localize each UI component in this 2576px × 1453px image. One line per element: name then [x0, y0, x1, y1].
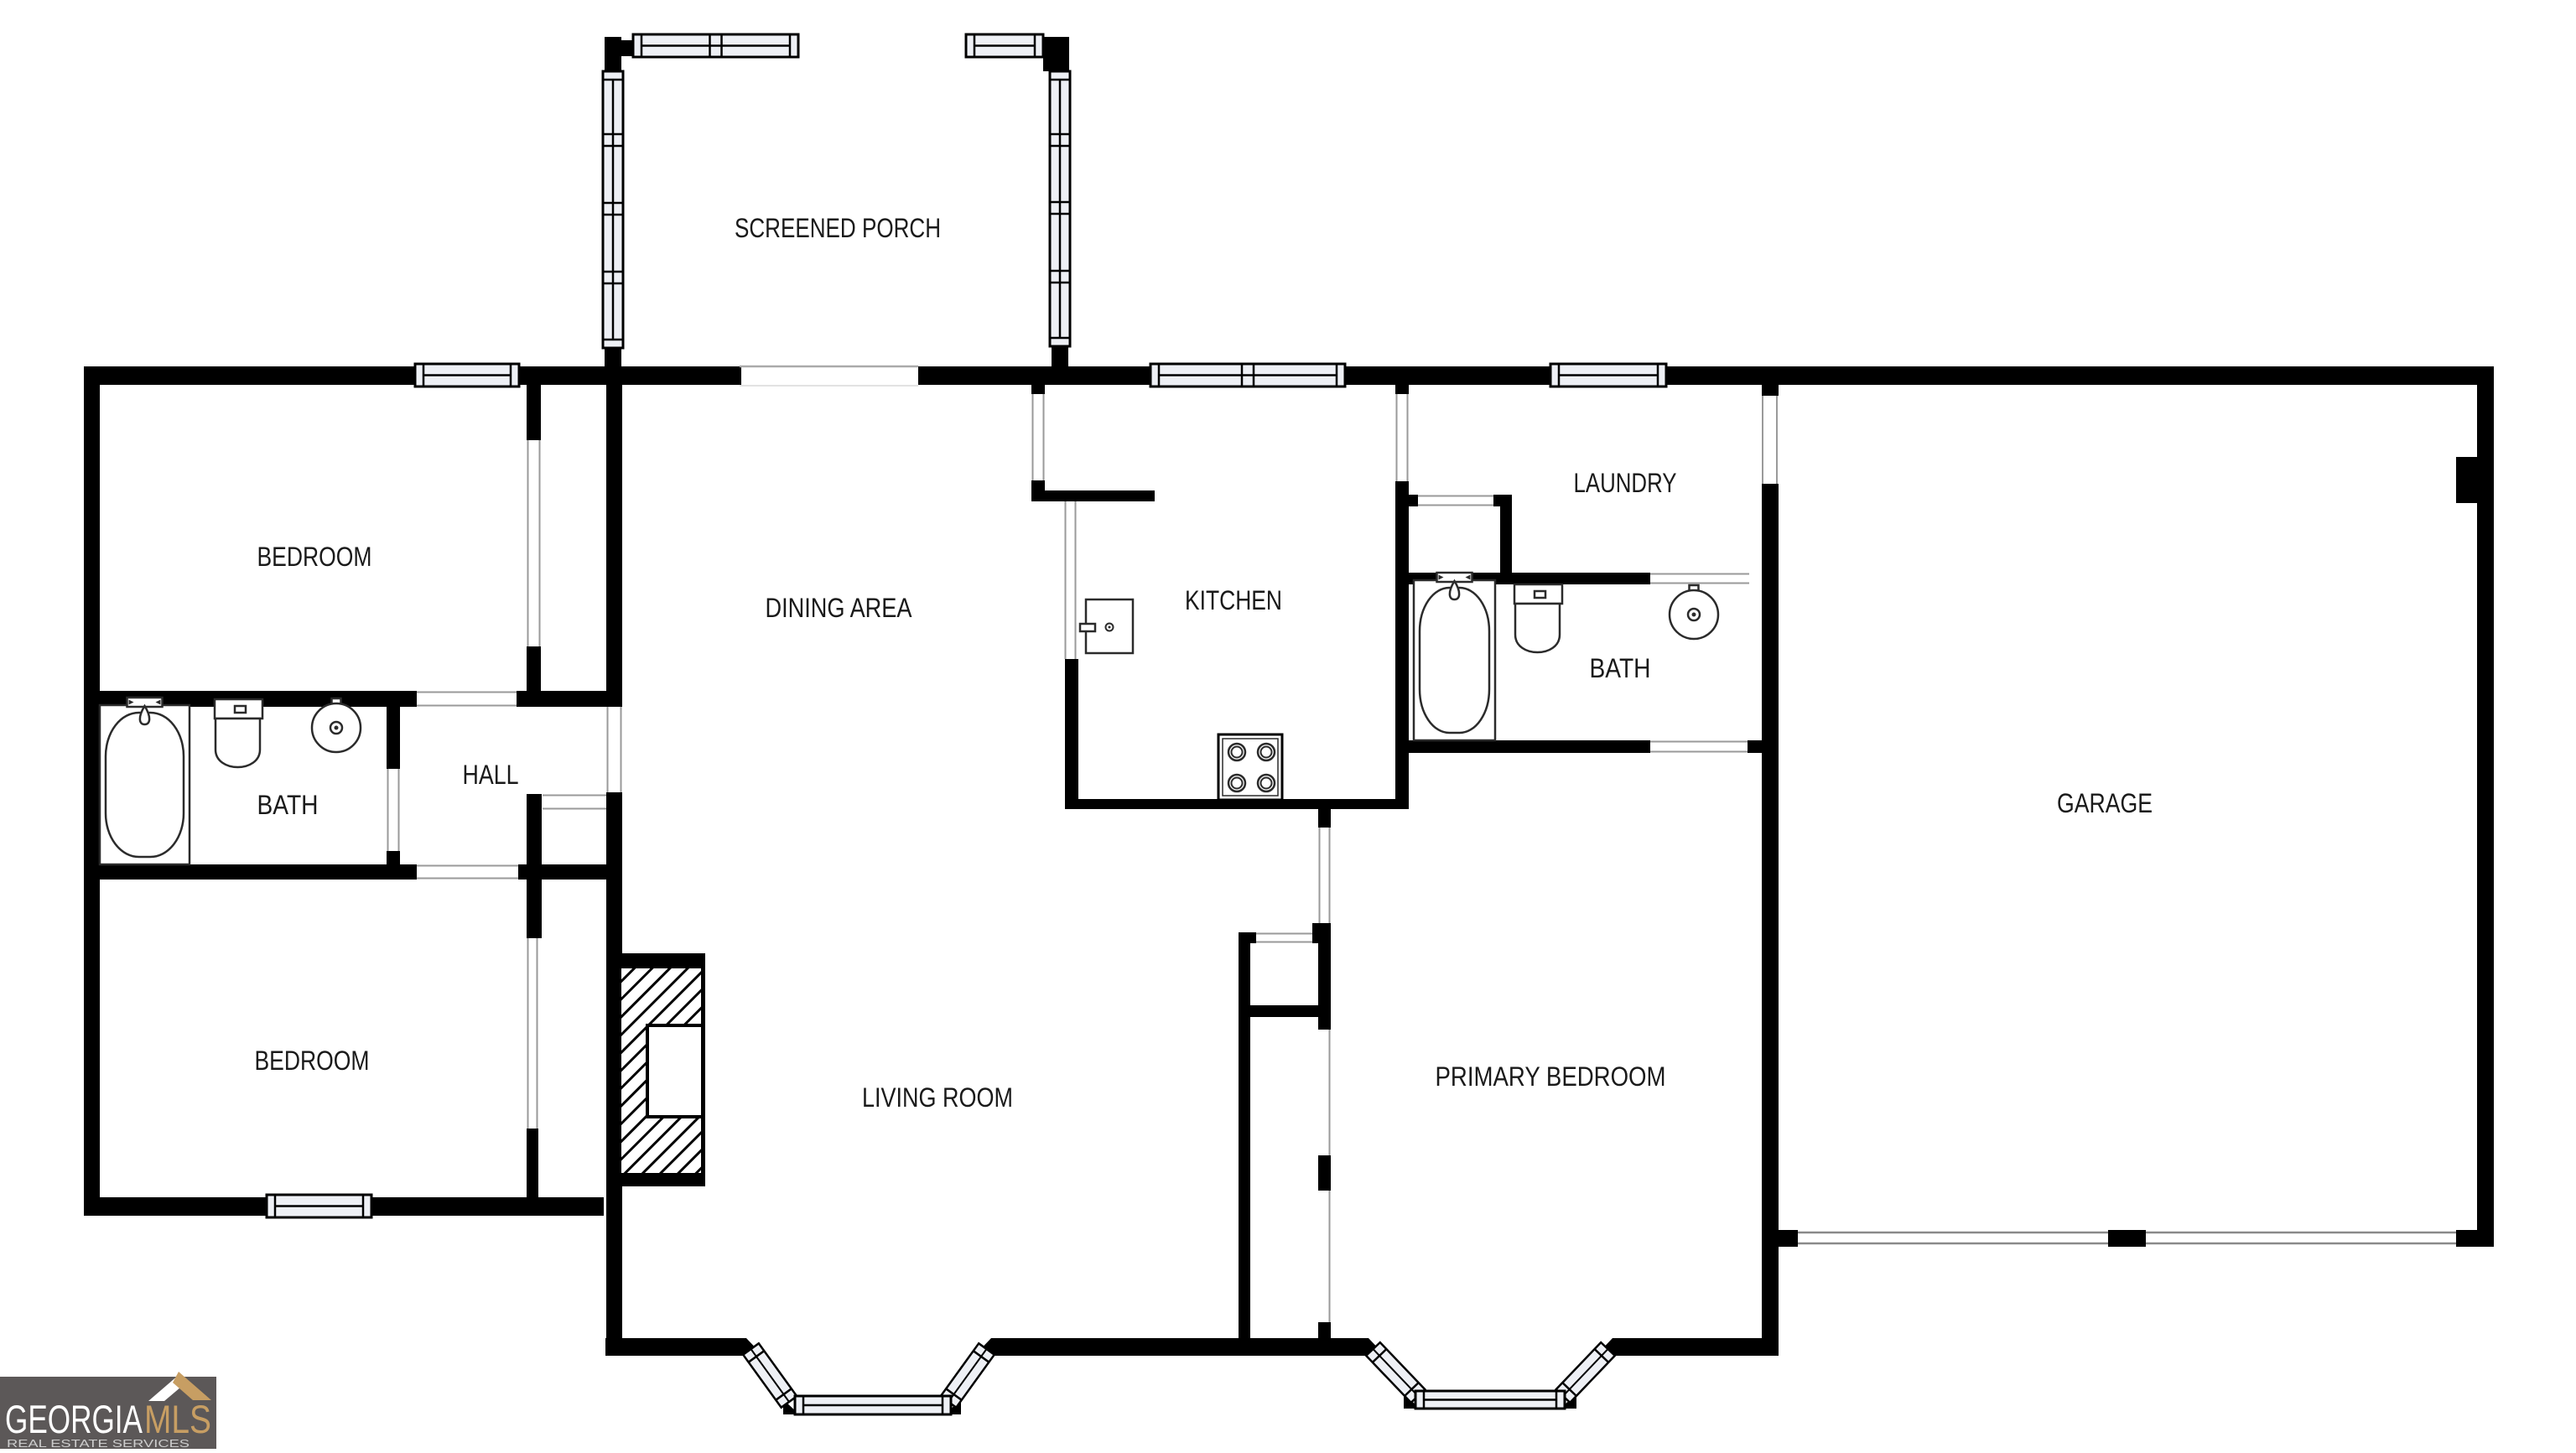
svg-text:DINING AREA: DINING AREA [766, 593, 913, 623]
svg-text:BATH: BATH [257, 790, 319, 820]
svg-text:KITCHEN: KITCHEN [1185, 585, 1282, 615]
svg-text:BEDROOM: BEDROOM [257, 542, 372, 572]
svg-text:BEDROOM: BEDROOM [255, 1046, 370, 1076]
svg-text:GARAGE: GARAGE [2057, 788, 2153, 818]
svg-text:SCREENED PORCH: SCREENED PORCH [735, 213, 941, 243]
svg-text:HALL: HALL [463, 760, 519, 790]
svg-text:GEORGIA: GEORGIA [5, 1397, 143, 1441]
svg-text:MLS: MLS [144, 1397, 211, 1441]
svg-text:BATH: BATH [1590, 653, 1651, 683]
svg-text:LIVING ROOM: LIVING ROOM [862, 1082, 1013, 1113]
svg-text:REAL ESTATE SERVICES: REAL ESTATE SERVICES [7, 1437, 190, 1449]
svg-text:LAUNDRY: LAUNDRY [1574, 468, 1677, 498]
svg-text:PRIMARY BEDROOM: PRIMARY BEDROOM [1436, 1061, 1666, 1092]
